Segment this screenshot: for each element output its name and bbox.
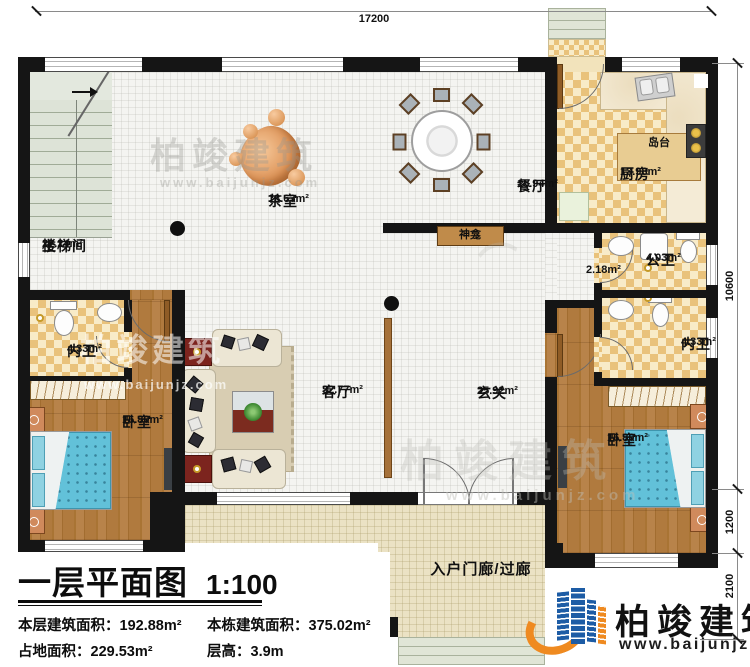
partition-screen bbox=[384, 318, 392, 478]
bed-left-sheet bbox=[45, 432, 75, 509]
dim-right-ext1-label: 1200 bbox=[724, 510, 736, 534]
bed-right-sheet bbox=[661, 430, 691, 507]
page-title: 一层平面图 bbox=[18, 556, 188, 604]
stat-floor-area: 本层建筑面积：192.88m² bbox=[18, 614, 182, 635]
porch-pier-right bbox=[545, 543, 563, 568]
toilet-bowl bbox=[652, 303, 669, 327]
wall-corner-notch bbox=[694, 74, 708, 88]
stair-area-label: 22.24m² bbox=[42, 238, 83, 251]
bed-left-pillow bbox=[32, 473, 45, 507]
stove-burner bbox=[691, 143, 701, 153]
wall-left bbox=[18, 57, 30, 552]
watermark: www.baijunjz.com bbox=[84, 378, 228, 391]
wall-living-south-corner bbox=[150, 492, 185, 552]
window bbox=[222, 57, 343, 72]
dim-line-top bbox=[35, 11, 712, 12]
coffee-table-plant bbox=[244, 403, 262, 421]
dining-table bbox=[411, 110, 473, 172]
dim-right-main-label: 10600 bbox=[724, 271, 736, 302]
dim-top-label: 17200 bbox=[356, 13, 393, 25]
bed-right-pillow bbox=[691, 471, 704, 505]
watermark: ⌒ bbox=[477, 241, 523, 287]
toilet-bowl bbox=[54, 310, 74, 336]
sofa-pillow bbox=[239, 459, 253, 473]
sofa-pillow bbox=[237, 337, 251, 351]
kitchen-sink-basin bbox=[639, 78, 654, 96]
floor-plan: 柏竣建筑 www.baijunjz.com 柏竣建筑 www.baijunjz.… bbox=[0, 0, 750, 667]
side-table-medallion bbox=[193, 465, 201, 473]
bath-hook bbox=[36, 314, 44, 322]
drawing-scale: 1:100 bbox=[206, 569, 278, 601]
watermark: 柏竣建筑 bbox=[150, 138, 318, 174]
island-label: 岛台 bbox=[648, 137, 670, 150]
window bbox=[595, 553, 678, 568]
stair-up-arrow bbox=[72, 91, 92, 93]
window bbox=[420, 57, 518, 72]
stat-footprint-area: 占地面积：229.53m² bbox=[18, 640, 153, 661]
bed-left-pillow bbox=[32, 436, 45, 470]
wall-right bbox=[706, 57, 718, 568]
stat-building-area: 本栋建筑面积：375.02m² bbox=[207, 614, 371, 635]
toilet-tank bbox=[676, 232, 700, 240]
logo-building-icon bbox=[571, 588, 585, 644]
toilet-tank bbox=[50, 301, 77, 310]
window bbox=[217, 492, 350, 505]
stat-floor-height: 层高：3.9m bbox=[207, 640, 284, 661]
dining-chair bbox=[433, 178, 450, 192]
window bbox=[18, 243, 30, 277]
company-logo: 柏竣建筑 www.baijunjz.com bbox=[523, 588, 748, 663]
staircase bbox=[30, 100, 112, 237]
column bbox=[384, 296, 399, 311]
bed-right-pillow bbox=[691, 434, 704, 468]
column bbox=[170, 221, 185, 236]
wall-bath-divider bbox=[594, 290, 718, 298]
dining-chair bbox=[393, 134, 407, 151]
stove-burner bbox=[691, 128, 701, 138]
watermark: www.baijunjz.com bbox=[446, 488, 639, 503]
shrine-label: 神龛 bbox=[459, 229, 481, 242]
dining-chair bbox=[477, 134, 491, 151]
window bbox=[706, 245, 718, 285]
logo-building-icon bbox=[557, 591, 569, 640]
room-label-porch: 入户门廊/过廊 bbox=[430, 561, 531, 579]
stair-up-arrowhead bbox=[90, 87, 98, 97]
logo-website: www.baijunjz.com bbox=[619, 636, 750, 654]
sofa-pillow bbox=[189, 397, 204, 412]
kitchen-sink-basin bbox=[655, 76, 670, 94]
dining-chair bbox=[433, 88, 450, 102]
tea-cushion bbox=[268, 109, 285, 126]
title-block: 一层平面图 1:100 本层建筑面积：192.88m² 本栋建筑面积：375.0… bbox=[18, 556, 438, 666]
logo-building-icon bbox=[587, 600, 596, 643]
wall-bed1-north bbox=[18, 290, 130, 300]
title-underline bbox=[18, 600, 262, 606]
window bbox=[45, 540, 143, 552]
watermark: 柏竣建筑 bbox=[400, 440, 616, 484]
window bbox=[622, 57, 680, 72]
window bbox=[45, 57, 142, 72]
watermark: www.baijunjz.com bbox=[160, 176, 320, 189]
sink bbox=[608, 300, 634, 320]
wall-mid-horizontal bbox=[383, 223, 718, 233]
toilet-bowl bbox=[680, 240, 697, 263]
logo-building-icon bbox=[598, 605, 606, 644]
fridge bbox=[559, 192, 589, 221]
